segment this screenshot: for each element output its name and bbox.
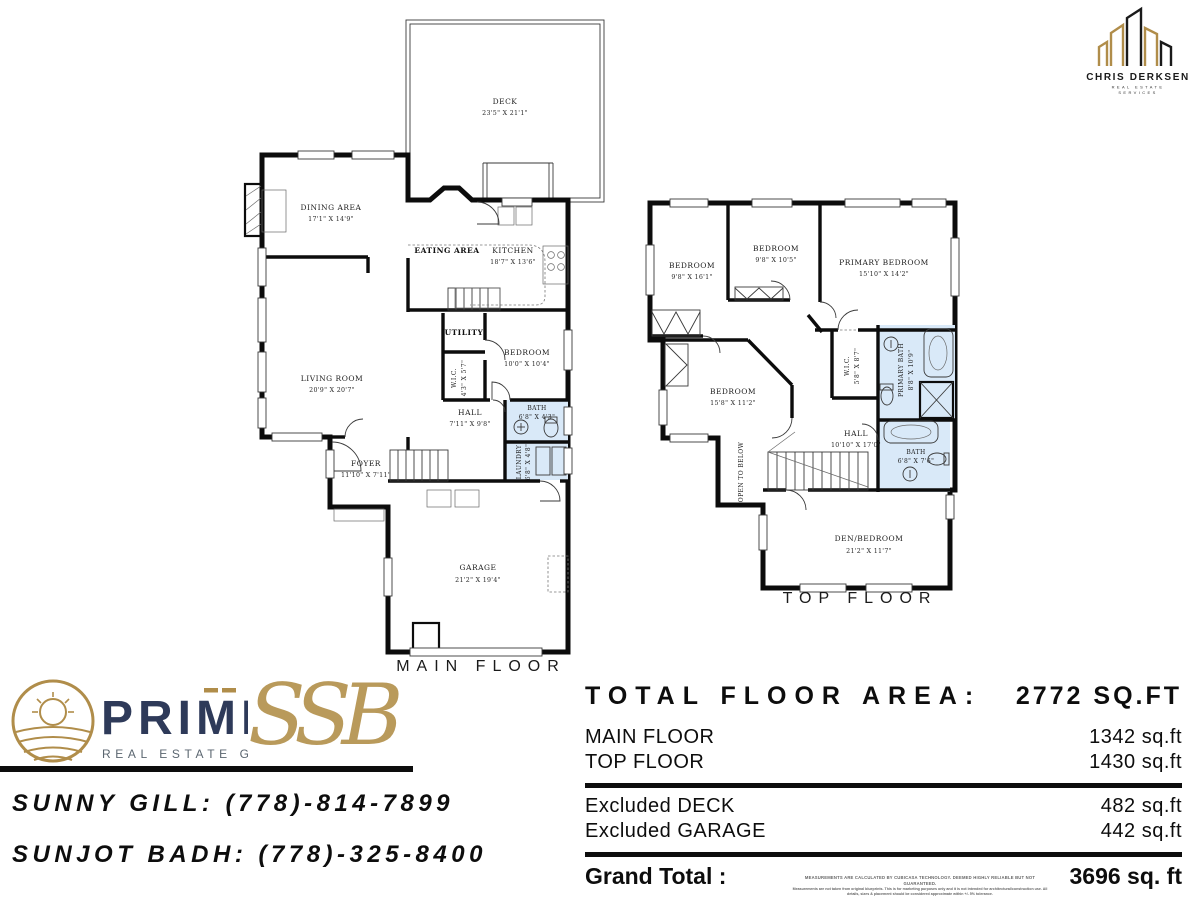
laundry-dims: 6'8" X 4'8" [525,444,532,481]
row-excluded-deck-value: 482 sq.ft [1101,794,1182,819]
top-wic-label: W.I.C. [844,356,851,376]
grand-total-row: Grand Total : 3696 sq. ft MEASUREMENTS A… [585,863,1182,890]
bedroom-left-label: BEDROOM [669,261,715,270]
buildings-icon [1099,9,1171,66]
open-to-below-label: OPEN TO BELOW [738,441,745,502]
bedroom-label: BEDROOM [504,348,550,357]
excluded-rows: Excluded DECK 482 sq.ft Excluded GARAGE … [585,794,1182,844]
floorplan-flyer: { "colors": { "wall": "#0c0c0c", "bath_f… [0,0,1200,900]
primary-bath-label: PRIMARY BATH [898,343,905,397]
top-hall-label: HALL [844,429,868,438]
top-hall-dims: 10'10" X 17'0" [831,442,881,449]
floor-rows: MAIN FLOOR 1342 sq.ft TOP FLOOR 1430 sq.… [585,725,1182,775]
living-dims: 20'9" X 20'7" [309,387,355,394]
dining-dims: 17'1" X 14'9" [308,216,354,223]
summary-header: TOTAL FLOOR AREA: 2772 SQ.FT [585,682,1182,711]
prime-tagline: REAL ESTATE GROUP [102,747,248,761]
agent-tagline-2: SERVICES [1118,90,1157,95]
row-main-floor-value: 1342 sq.ft [1089,725,1182,750]
ssb-script-text: SSB [248,668,418,763]
divider-bar [0,766,413,772]
laundry-label: LAUNDRY [516,444,523,479]
top-wic-dims: 5'8" X 8'7" [854,348,861,385]
deck-label: DECK [493,97,518,106]
prime-gold-dash-2 [222,688,236,693]
bath-label: BATH [527,405,546,412]
bedroom-mid-label: BEDROOM [753,244,799,253]
hall-dims: 7'11" X 9'8" [449,421,490,428]
deck-dims: 23'5" X 21'1" [482,110,528,117]
foyer-label: FOYER [351,459,381,468]
row-excluded-garage-value: 442 sq.ft [1101,819,1182,844]
summary-rule-1 [585,783,1182,788]
agent-logo: CHRIS DERKSEN REAL ESTATE SERVICES [1083,6,1198,101]
main-floor-plan: DECK 23'5" X 21'1" DINING AREA 17'1" X 1… [245,20,604,675]
contact-sunjot-badh: SUNJOT BADH: (778)-325-8400 [12,841,487,869]
primary-bedroom-dims: 15'10" X 14'2" [859,271,909,278]
contact-sunny-gill: SUNNY GILL: (778)-814-7899 [12,790,454,818]
disclaimer-line-1: MEASUREMENTS ARE CALCULATED BY CUBICASA … [790,875,1050,887]
prime-gold-dash-1 [204,688,218,693]
row-main-floor: MAIN FLOOR 1342 sq.ft [585,725,1182,750]
row-excluded-deck: Excluded DECK 482 sq.ft [585,794,1182,819]
living-label: LIVING ROOM [301,374,363,383]
summary-rule-2 [585,852,1182,857]
agent-tagline-1: REAL ESTATE [1112,85,1165,90]
bedroom-mid-dims: 9'8" X 10'5" [755,257,796,264]
agent-name: CHRIS DERKSEN [1086,72,1190,83]
main-floor-title: MAIN FLOOR [396,658,566,675]
disclaimer-line-2: Measurements are not taken from original… [790,887,1050,896]
bedroom-lower-dims: 15'8" X 11'2" [710,400,756,407]
bedroom-dims: 10'0" X 10'4" [504,361,550,368]
ssb-monogram: SSB [248,668,418,773]
row-excluded-garage-label: Excluded GARAGE [585,819,766,844]
row-main-floor-label: MAIN FLOOR [585,725,714,750]
prime-sun-icon [13,681,93,761]
area-summary: TOTAL FLOOR AREA: 2772 SQ.FT MAIN FLOOR … [585,682,1182,890]
wic-dims: 4'3" X 5'7" [461,360,468,397]
primary-bath-dims: 8'8" X 10'9" [908,350,915,391]
summary-total: 2772 SQ.FT [1016,682,1182,711]
bedroom-left-dims: 9'8" X 16'1" [671,274,712,281]
summary-title: TOTAL FLOOR AREA: [585,682,981,711]
prime-wordmark: PRIME [101,692,248,745]
top-floor-title: TOP FLOOR [783,590,938,607]
bath-dims: 6'8" X 4'3" [519,414,556,421]
floor-plans-canvas: DECK 23'5" X 21'1" DINING AREA 17'1" X 1… [0,0,1200,680]
row-top-floor-value: 1430 sq.ft [1089,750,1182,775]
garage-dims: 21'2" X 19'4" [455,577,501,584]
wic-label: W.I.C. [451,368,458,388]
eating-area-label: EATING AREA [414,246,479,255]
foyer-dims: 11'10" X 7'11" [341,472,391,479]
utility-label: UTILITY [445,328,484,337]
top-bath-dims: 6'8" X 7'6" [898,458,935,465]
disclaimer: MEASUREMENTS ARE CALCULATED BY CUBICASA … [790,875,1050,896]
top-floor-plan: BEDROOM 9'8" X 16'1" BEDROOM 9'8" X 10'5… [646,199,959,607]
row-excluded-deck-label: Excluded DECK [585,794,735,819]
den-bedroom-label: DEN/BEDROOM [835,534,904,543]
kitchen-dims: 18'7" X 13'6" [490,259,536,266]
primary-bedroom-label: PRIMARY BEDROOM [839,258,929,267]
garage-label: GARAGE [460,563,497,572]
kitchen-label: KITCHEN [492,246,533,255]
prime-logo: PRIME REAL ESTATE GROUP [8,674,248,769]
row-excluded-garage: Excluded GARAGE 442 sq.ft [585,819,1182,844]
hall-label: HALL [458,408,482,417]
row-top-floor: TOP FLOOR 1430 sq.ft [585,750,1182,775]
den-bedroom-dims: 21'2" X 11'7" [846,548,892,555]
laundry-floor-fill [505,442,568,480]
row-top-floor-label: TOP FLOOR [585,750,704,775]
grand-total-value: 3696 sq. ft [1070,863,1183,890]
top-bath-label: BATH [906,449,925,456]
dining-label: DINING AREA [301,203,362,212]
grand-total-label: Grand Total : [585,863,726,890]
bedroom-lower-label: BEDROOM [710,387,756,396]
